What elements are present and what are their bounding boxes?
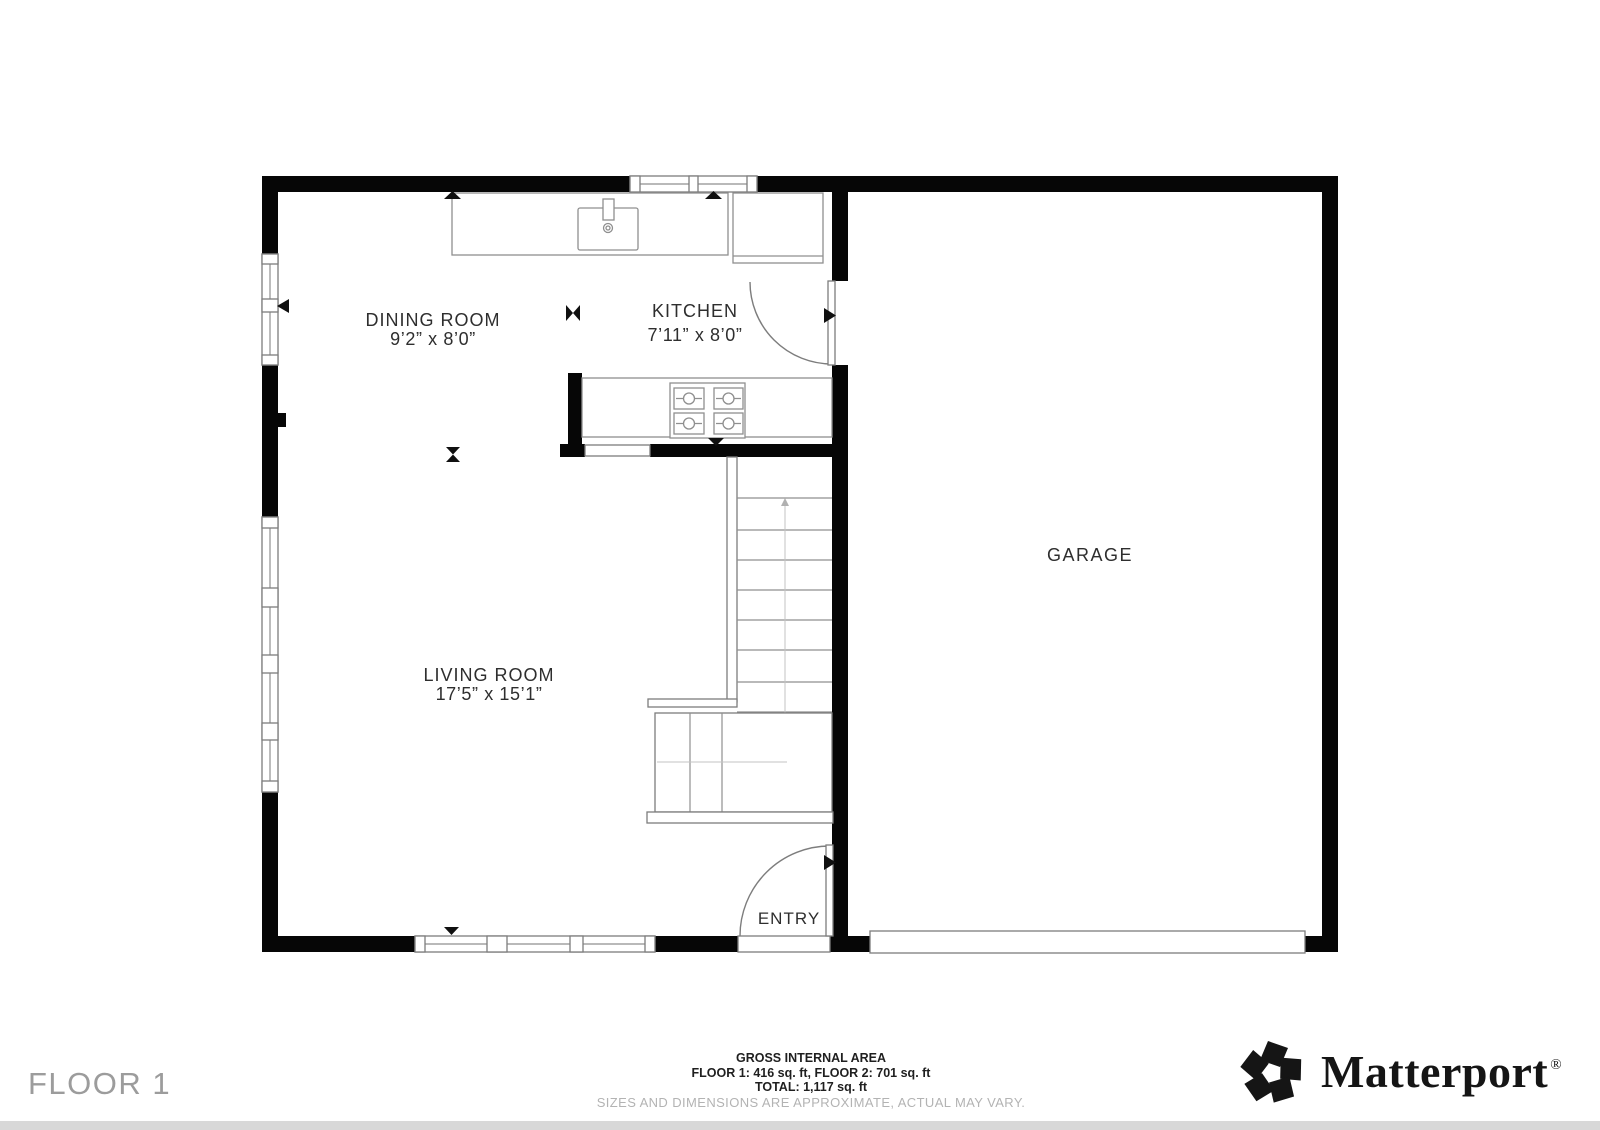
stair-direction-arrow <box>781 498 789 506</box>
marker-left-window <box>277 299 289 313</box>
window-top <box>630 176 757 192</box>
sink-drain-inner <box>606 226 610 230</box>
wall-left-1 <box>262 176 278 254</box>
bowtie-marker-vertical <box>446 447 460 462</box>
window-left-upper <box>262 254 278 365</box>
kitchen-door-leaf <box>828 281 835 365</box>
wall-right <box>1322 176 1338 952</box>
entry-label: ENTRY <box>758 909 820 928</box>
bowtie-marker-horizontal <box>566 305 580 321</box>
wall-left-3 <box>262 792 278 952</box>
dining-room-dims: 9’2” x 8’0” <box>390 329 476 349</box>
kitchen-stub-wall <box>568 373 582 445</box>
marker-down-living <box>444 927 459 935</box>
area-disclaimer: SIZES AND DIMENSIONS ARE APPROXIMATE, AC… <box>461 1095 1161 1110</box>
staircase <box>647 457 833 823</box>
closet-opening-bar <box>647 812 833 823</box>
stove <box>670 383 745 438</box>
wall-left-notch <box>278 413 286 427</box>
kitchen-garage-door <box>750 281 835 365</box>
registered-mark: ® <box>1550 1057 1562 1073</box>
exterior-walls <box>262 176 1338 952</box>
stair-lower-rail <box>648 699 737 707</box>
area-title: GROSS INTERNAL AREA <box>461 1051 1161 1066</box>
wall-bottom-2 <box>655 936 738 952</box>
refrigerator <box>733 193 823 263</box>
area-line-floors: FLOOR 1: 416 sq. ft, FLOOR 2: 701 sq. ft <box>461 1066 1161 1081</box>
floorplan-drawing: DINING ROOM 9’2” x 8’0” KITCHEN 7’11” x … <box>0 0 1600 1130</box>
wall-left-2 <box>262 365 278 517</box>
sink-faucet <box>603 199 614 220</box>
garage-wall-upper <box>832 176 848 281</box>
interior-walls <box>560 176 848 952</box>
entry-threshold <box>738 936 830 952</box>
floorplan-page: DINING ROOM 9’2” x 8’0” KITCHEN 7’11” x … <box>0 0 1600 1130</box>
dining-room-label: DINING ROOM <box>366 310 501 330</box>
living-room-dims: 17’5” x 15’1” <box>436 684 543 704</box>
garage-door <box>870 931 1305 953</box>
kitchen-fixtures <box>452 193 832 438</box>
bottom-edge-strip <box>0 1121 1600 1130</box>
matterport-logo-icon <box>1238 1038 1306 1106</box>
living-room-label: LIVING ROOM <box>423 665 554 685</box>
window-bottom <box>415 936 655 952</box>
kitchen-wall-b <box>650 444 848 457</box>
wall-top-left <box>262 176 630 192</box>
kitchen-door-swing-arc <box>750 282 832 364</box>
area-line-total: TOTAL: 1,117 sq. ft <box>461 1080 1161 1095</box>
matterport-wordmark: Matterport® <box>1321 1049 1562 1095</box>
kitchen-label: KITCHEN <box>652 301 738 321</box>
matterport-logo: Matterport® <box>1238 1038 1562 1106</box>
area-summary: GROSS INTERNAL AREA FLOOR 1: 416 sq. ft,… <box>461 1051 1161 1110</box>
window-left-lower <box>262 517 278 792</box>
stair-side-rail <box>727 457 737 702</box>
kitchen-wall-a <box>560 444 585 457</box>
garage-label: GARAGE <box>1047 545 1133 565</box>
kitchen-dims: 7’11” x 8’0” <box>648 325 743 345</box>
kitchen-pass-threshold <box>585 445 650 456</box>
floor-indicator: FLOOR 1 <box>28 1066 171 1102</box>
wall-bottom-1 <box>262 936 415 952</box>
